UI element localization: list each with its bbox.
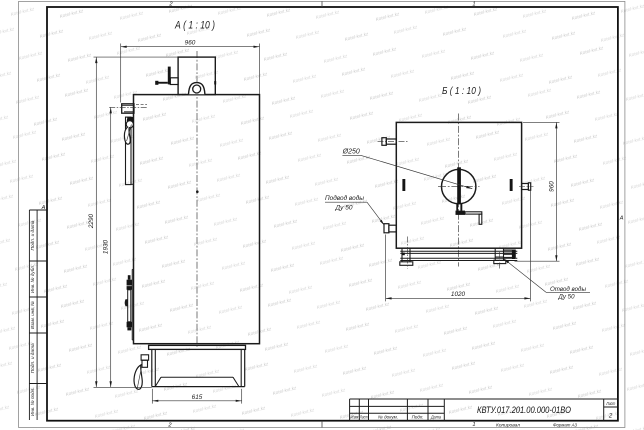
svg-text:Изм: Изм [350,415,358,420]
svg-text:Подп.: Подп. [412,415,424,420]
svg-text:Б ( 1 : 10 ): Б ( 1 : 10 ) [442,85,481,97]
svg-text:КВТУ.017.201.00.000-01ВО: КВТУ.017.201.00.000-01ВО [477,405,571,415]
svg-text:Дата: Дата [430,415,441,420]
svg-text:№ докум.: № докум. [378,415,398,420]
svg-text:960: 960 [185,40,196,47]
svg-text:1: 1 [472,422,475,428]
svg-text:1020: 1020 [451,291,466,298]
svg-text:615: 615 [192,394,203,401]
svg-text:Инв. № подл.: Инв. № подл. [30,388,35,417]
svg-text:Ø250: Ø250 [342,149,360,156]
svg-text:1930: 1930 [103,239,110,254]
svg-text:Формат А3: Формат А3 [553,422,577,428]
svg-text:Ду 50: Ду 50 [334,204,353,211]
svg-text:Инв. № дубл.: Инв. № дубл. [30,265,35,293]
svg-text:1: 1 [472,2,475,8]
svg-text:Отвод воды: Отвод воды [550,285,586,293]
svg-text:А ( 1 : 10 ): А ( 1 : 10 ) [174,20,215,32]
svg-text:Подп. и дата: Подп. и дата [30,343,35,373]
svg-text:2: 2 [608,414,613,420]
svg-text:960: 960 [549,181,556,192]
svg-text:Лист: Лист [359,415,368,420]
svg-text:Взам. инв. №: Взам. инв. № [30,301,35,329]
svg-text:2290: 2290 [88,213,95,229]
svg-text:Копировал: Копировал [496,422,520,428]
svg-text:Подвод воды: Подвод воды [325,194,364,202]
svg-text:Подп. и дата: Подп. и дата [30,220,35,250]
svg-text:Ду 50: Ду 50 [558,294,575,301]
svg-text:А: А [619,216,624,222]
svg-text:Лист: Лист [606,401,616,406]
